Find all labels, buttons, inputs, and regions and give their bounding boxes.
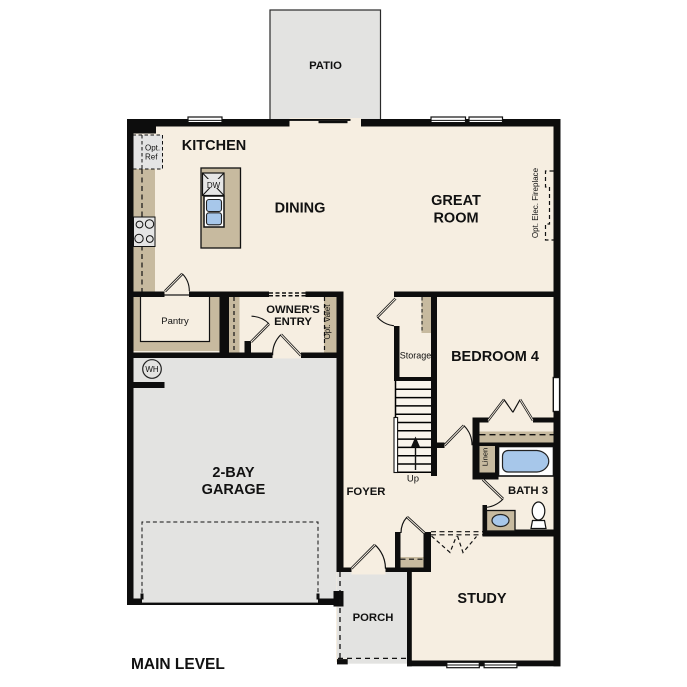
svg-text:DW: DW bbox=[207, 181, 221, 190]
svg-text:2-BAY: 2-BAY bbox=[212, 465, 255, 481]
svg-text:Opt. Valet: Opt. Valet bbox=[323, 304, 332, 340]
svg-text:Up: Up bbox=[407, 474, 419, 485]
svg-text:GREAT: GREAT bbox=[431, 193, 481, 209]
svg-text:BEDROOM 4: BEDROOM 4 bbox=[451, 349, 539, 365]
svg-text:KITCHEN: KITCHEN bbox=[182, 138, 246, 154]
svg-text:BATH 3: BATH 3 bbox=[508, 485, 548, 497]
svg-text:ROOM: ROOM bbox=[433, 211, 478, 227]
svg-text:Opt.: Opt. bbox=[145, 144, 160, 153]
svg-text:GARAGE: GARAGE bbox=[202, 482, 266, 498]
svg-text:Pantry: Pantry bbox=[161, 316, 189, 327]
svg-text:STUDY: STUDY bbox=[457, 591, 506, 607]
svg-text:Ref: Ref bbox=[145, 153, 158, 162]
svg-text:ENTRY: ENTRY bbox=[274, 316, 312, 328]
svg-text:FOYER: FOYER bbox=[347, 486, 386, 498]
svg-text:Linen: Linen bbox=[481, 448, 490, 467]
svg-text:DINING: DINING bbox=[275, 201, 326, 217]
svg-text:Storage: Storage bbox=[400, 351, 432, 361]
svg-text:PATIO: PATIO bbox=[309, 60, 342, 72]
svg-text:Opt. Elec. Fireplace: Opt. Elec. Fireplace bbox=[531, 167, 540, 238]
svg-text:MAIN LEVEL: MAIN LEVEL bbox=[131, 656, 225, 673]
svg-text:WH: WH bbox=[145, 365, 159, 374]
svg-text:OWNER'S: OWNER'S bbox=[266, 304, 320, 316]
svg-text:PORCH: PORCH bbox=[353, 612, 394, 624]
